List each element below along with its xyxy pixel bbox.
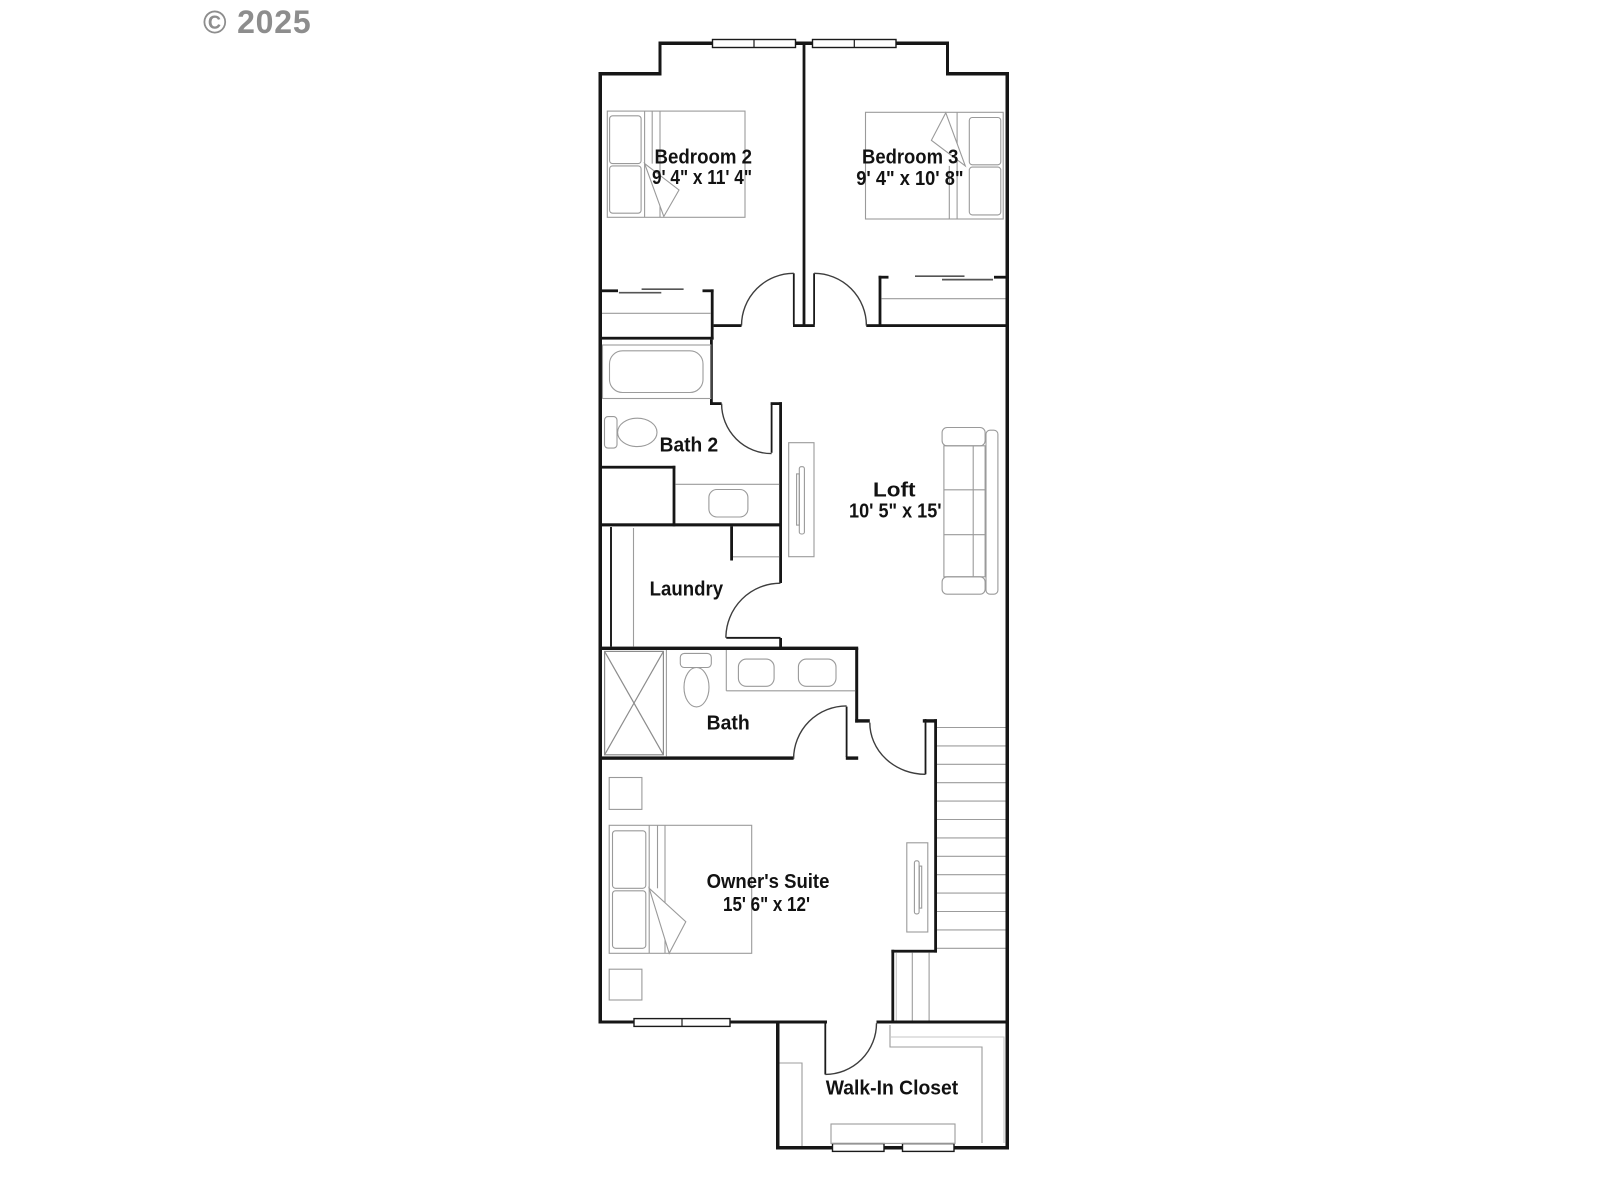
svg-text:Walk-In Closet: Walk-In Closet [826,1077,959,1099]
svg-text:9' 4" x 11' 4": 9' 4" x 11' 4" [652,167,752,189]
svg-text:Loft: Loft [873,480,916,502]
svg-text:15' 6" x 12': 15' 6" x 12' [723,894,810,916]
svg-text:Bath 2: Bath 2 [660,435,719,457]
svg-text:Laundry: Laundry [650,578,724,600]
svg-text:Owner's Suite: Owner's Suite [707,871,830,893]
svg-text:Bedroom 3: Bedroom 3 [862,147,958,169]
svg-text:10' 5" x 15': 10' 5" x 15' [849,501,942,523]
svg-text:Bath: Bath [707,712,750,734]
svg-text:9' 4" x 10' 8": 9' 4" x 10' 8" [856,168,963,190]
svg-text:Bedroom 2: Bedroom 2 [655,147,753,169]
svg-text:© 2025: © 2025 [203,4,311,40]
